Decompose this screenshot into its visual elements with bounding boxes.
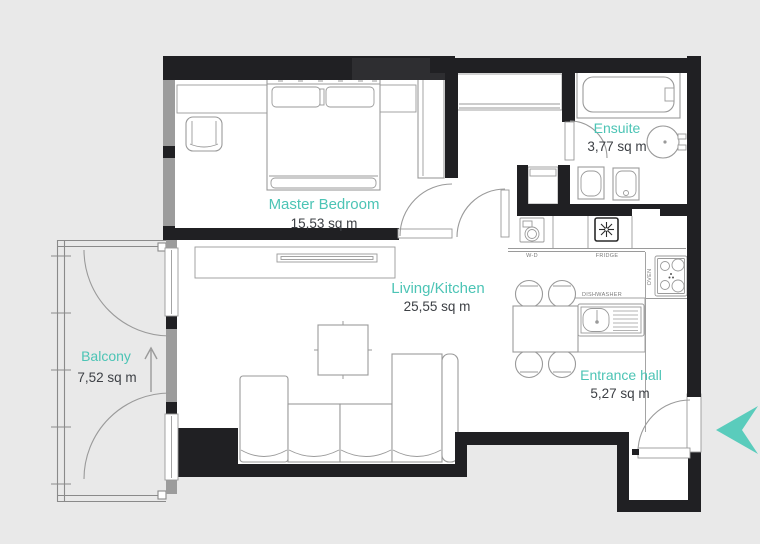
kitchen-sink	[578, 304, 644, 336]
label-oven: OVEN	[647, 269, 653, 286]
label-fridge: FRIDGE	[596, 253, 619, 259]
area-label-entrance-hall: 5,27 sq m	[590, 386, 649, 401]
area-label-balcony: 7,52 sq m	[77, 370, 136, 385]
area-label-living-kitchen: 25,55 sq m	[404, 299, 471, 314]
room-label-living-kitchen: Living/Kitchen	[391, 280, 484, 297]
coffee-table	[314, 321, 372, 379]
balcony-direction-arrow-icon	[145, 348, 157, 392]
shower-tray	[613, 168, 639, 200]
dining-chair	[549, 281, 576, 308]
hob	[655, 256, 687, 296]
toilet	[578, 167, 604, 199]
balcony-door-bottom	[84, 393, 178, 480]
entry-arrow-icon	[716, 406, 758, 454]
floor-plan: Master Bedroom 15,53 sq m Ensuite 3,77 s…	[0, 0, 760, 544]
label-dishwasher: DISHWASHER	[582, 292, 622, 298]
area-label-ensuite: 3,77 sq m	[587, 139, 646, 154]
room-label-entrance-hall: Entrance hall	[580, 367, 662, 383]
dining-chair	[516, 351, 543, 378]
room-label-master-bedroom: Master Bedroom	[269, 196, 380, 213]
bed	[267, 78, 380, 190]
tv-unit	[195, 247, 395, 278]
dining-chair	[549, 351, 576, 378]
hall-closet	[457, 74, 562, 110]
area-label-master-bedroom: 15,53 sq m	[291, 216, 358, 231]
entry-closet	[528, 167, 558, 204]
washer-dryer-icon	[520, 218, 544, 242]
wardrobe	[418, 76, 444, 178]
bathtub	[577, 71, 680, 118]
balcony-door-top	[84, 248, 178, 336]
room-label-ensuite: Ensuite	[594, 120, 641, 136]
dining-chair	[516, 281, 543, 308]
label-washer-dryer: W-D	[526, 253, 538, 259]
armchair	[186, 117, 222, 151]
room-label-balcony: Balcony	[81, 348, 131, 364]
floor-plan-svg: Master Bedroom 15,53 sq m Ensuite 3,77 s…	[0, 0, 760, 544]
fridge-icon	[595, 218, 618, 241]
dining-table	[513, 306, 578, 352]
